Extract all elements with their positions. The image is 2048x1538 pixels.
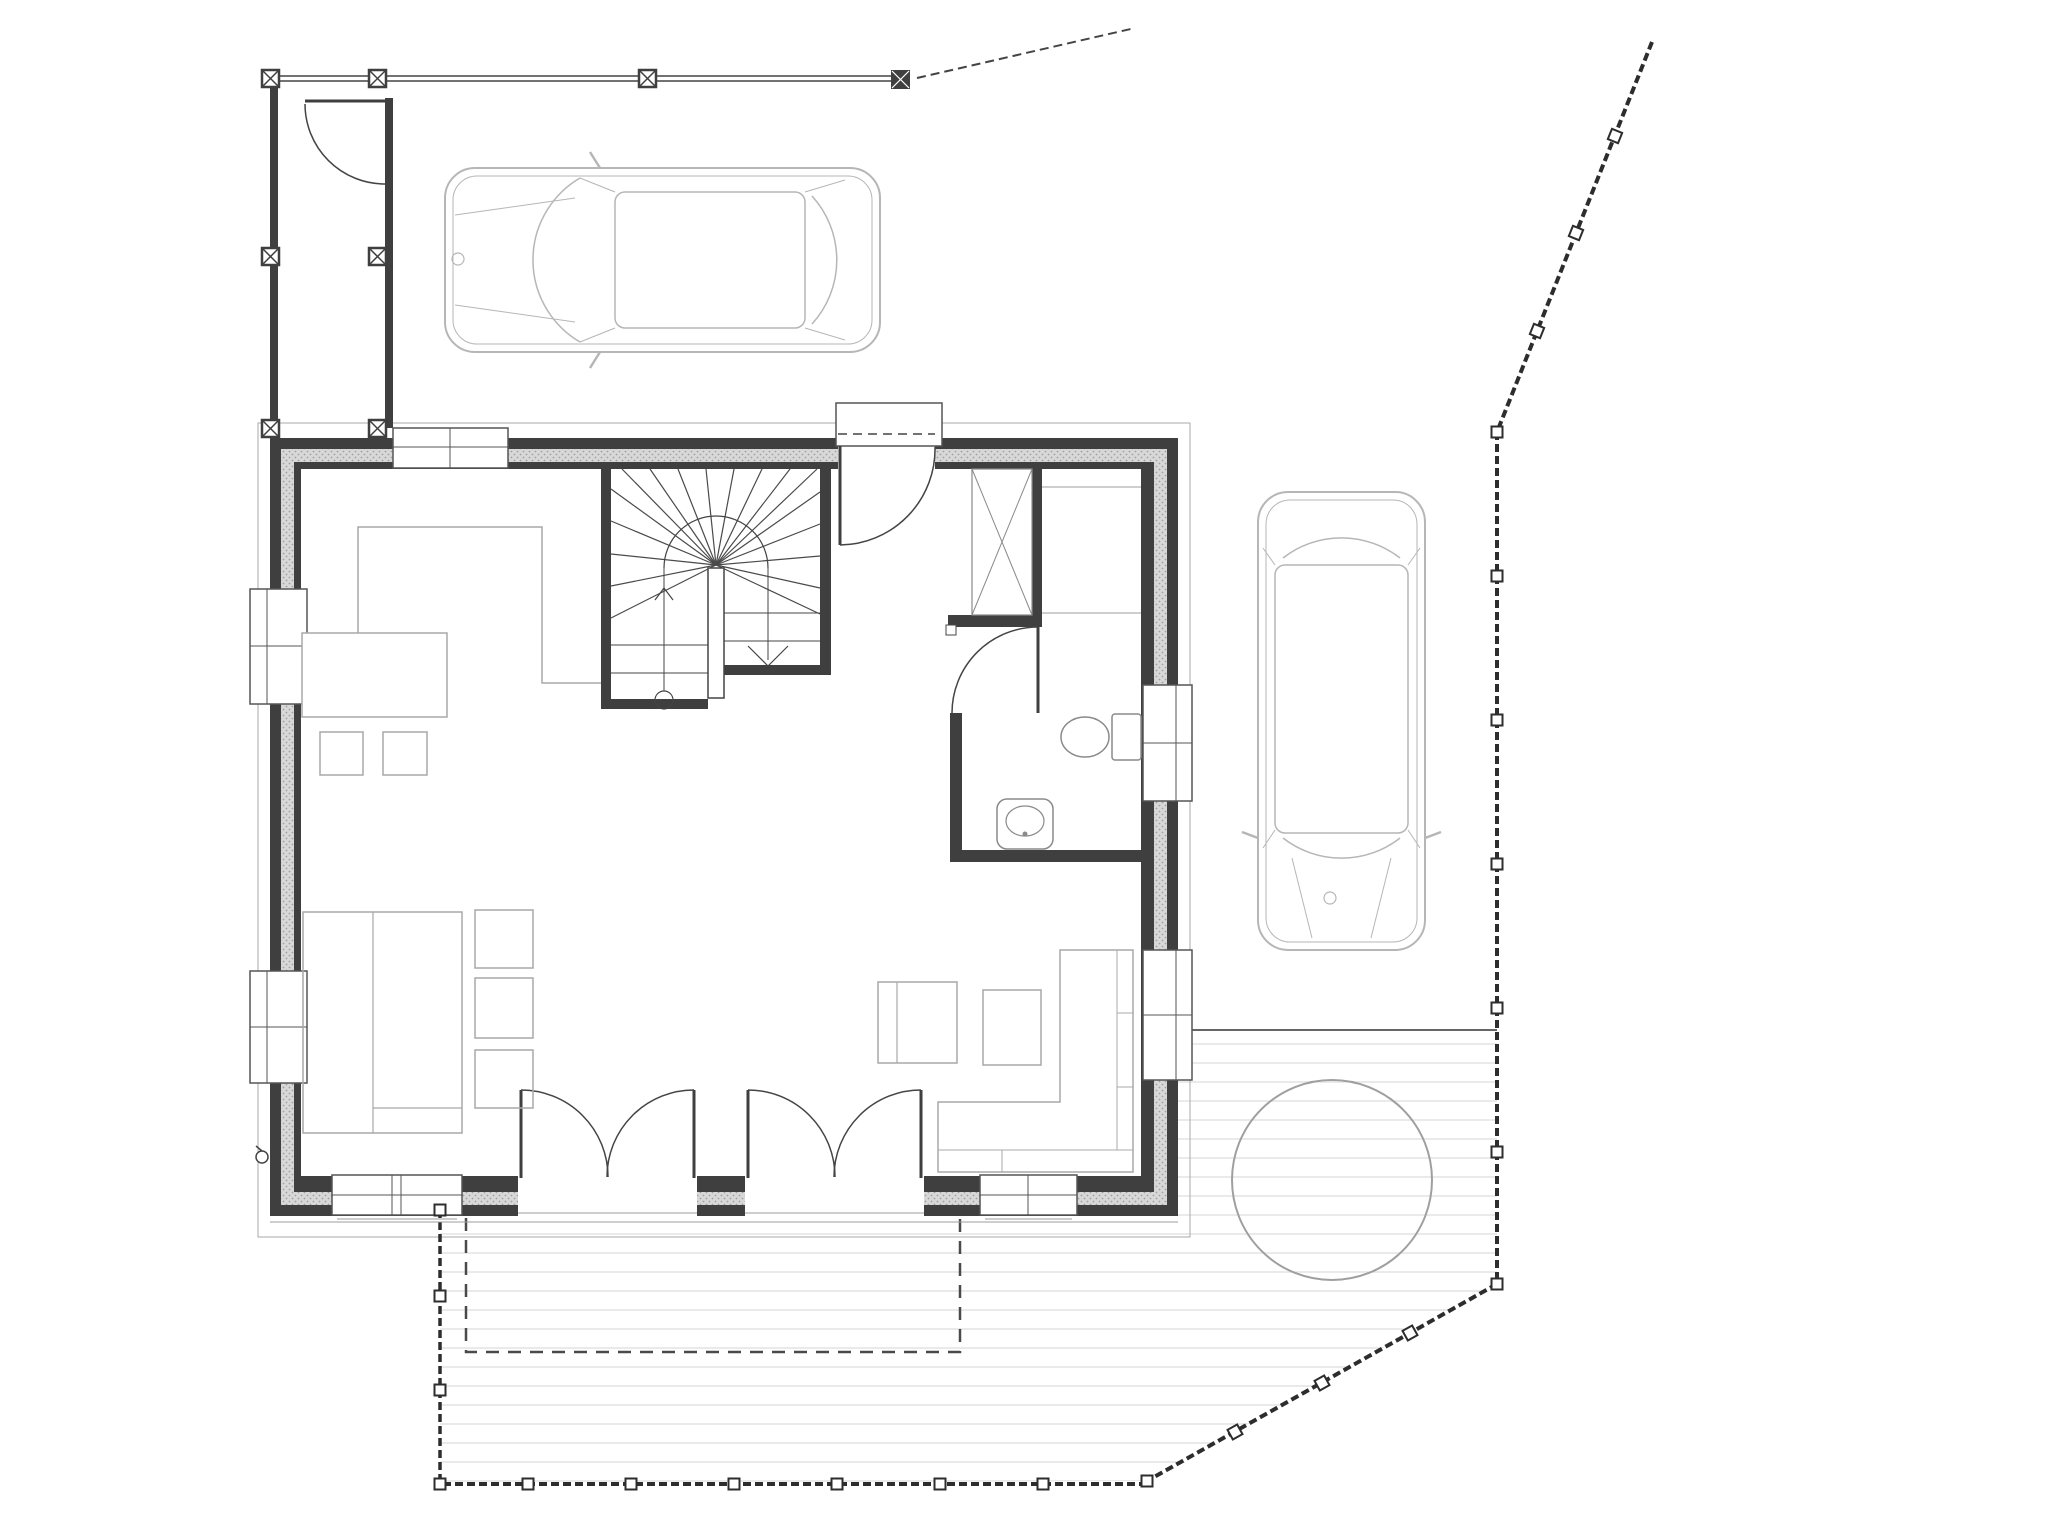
fence-post (1142, 1476, 1153, 1487)
fence-post (1038, 1479, 1049, 1490)
car-badge (1324, 892, 1336, 904)
fence-post (935, 1479, 946, 1490)
fence-post (626, 1479, 637, 1490)
fence-post (1569, 226, 1583, 240)
stair-wall-bottom-right (722, 665, 831, 675)
fence-post (435, 1479, 446, 1490)
car-hood-line (1292, 858, 1312, 938)
car-pillar (805, 328, 845, 340)
kitchen-island (302, 633, 447, 717)
french-door-1-opening (518, 1175, 697, 1216)
car-body (445, 168, 880, 352)
fence-post (729, 1479, 740, 1490)
car-mirror (1425, 832, 1441, 838)
outdoor-tap (256, 1151, 268, 1163)
fence-post (435, 1291, 446, 1302)
car-driveway (1242, 492, 1441, 950)
fence-post (435, 1385, 446, 1396)
car-hood-line (455, 198, 575, 215)
fence-post (435, 1205, 446, 1216)
floorplan-page (0, 0, 2048, 1538)
hall-door-frame (946, 625, 956, 635)
stair-wall-right (820, 469, 831, 675)
car-rear-window (1283, 538, 1400, 558)
car-pillar (1408, 548, 1420, 565)
fence-post (1492, 427, 1503, 438)
fence-post (1492, 715, 1503, 726)
hall-wall (948, 615, 1042, 627)
outdoor-tap-spout (256, 1146, 262, 1151)
fence-post (1492, 571, 1503, 582)
fence-post (832, 1479, 843, 1490)
car-windshield (1283, 838, 1400, 858)
car-roof (615, 192, 805, 328)
shed-door-swing (305, 104, 385, 184)
carport (262, 70, 910, 437)
fence-post (1492, 1003, 1503, 1014)
fence-post (1530, 324, 1544, 338)
car-pillar (1263, 548, 1275, 565)
toilet-tank (1112, 714, 1141, 760)
bath-wall-left (950, 713, 962, 862)
car-pillar (805, 180, 845, 192)
car-carport (445, 152, 880, 368)
stair-wall-left (601, 469, 611, 709)
fence-post (523, 1479, 534, 1490)
fence-post (1492, 859, 1503, 870)
car-mirror (590, 152, 600, 168)
french-door-2-opening (745, 1175, 924, 1216)
car-mirror (590, 352, 600, 368)
car-hood-line (455, 305, 575, 322)
car-pillar (1408, 830, 1420, 848)
fence-post (1492, 1147, 1503, 1158)
car-body (1258, 492, 1425, 950)
wardrobe-wall (1032, 469, 1042, 625)
car-pillar (1263, 830, 1275, 848)
toilet-bowl (1061, 717, 1109, 757)
car-badge (452, 253, 464, 265)
car-pillar (580, 328, 615, 342)
stair-newel (708, 568, 724, 698)
car-hood-line (1371, 858, 1391, 938)
car-body-inner (1266, 500, 1417, 942)
sink-drain (1023, 832, 1028, 837)
entrance-canopy (836, 403, 942, 446)
car-mirror (1242, 832, 1258, 838)
car-roof (1275, 565, 1408, 833)
bath-wall-bottom (950, 850, 1141, 862)
survey-line (917, 28, 1135, 78)
fence-post (1608, 129, 1622, 143)
car-pillar (580, 178, 615, 192)
car-body-inner (453, 176, 872, 344)
floorplan-drawing (0, 0, 2048, 1538)
wardrobe (972, 469, 1032, 615)
fence-post (1492, 1279, 1503, 1290)
car-rear-window (812, 196, 837, 324)
